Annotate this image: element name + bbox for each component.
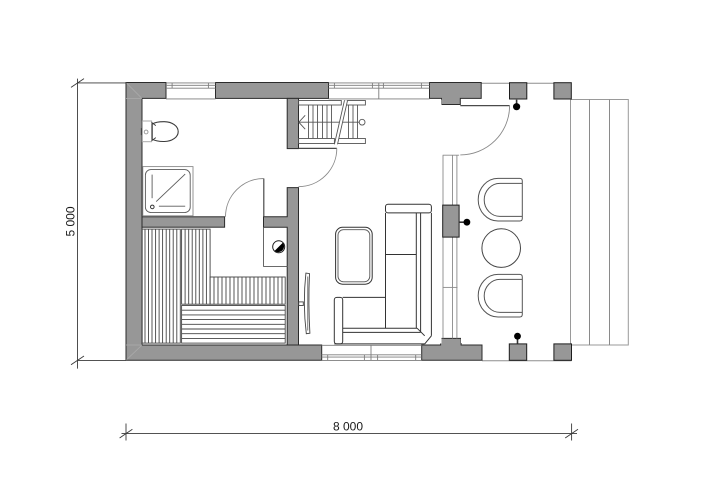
svg-text:8 000: 8 000 [333,419,363,433]
svg-text:5 000: 5 000 [64,206,78,236]
